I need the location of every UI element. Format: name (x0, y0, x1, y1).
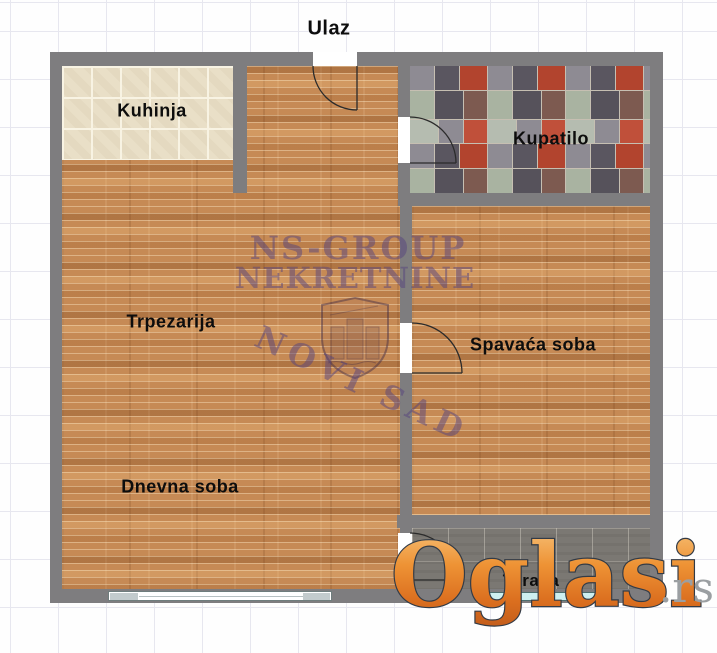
bathroom-label: Kupatilo (513, 129, 589, 150)
bedroom-door-arc (412, 323, 462, 373)
dining-label: Trpezarija (126, 312, 215, 333)
entrance-label: Ulaz (307, 18, 350, 41)
floorplan-canvas: NS-GROUP NEKRETNINE NOVI SAD Ulaz Kuhinj… (0, 0, 717, 653)
oglasi-logo-text: Oglasi (391, 524, 703, 627)
oglasi-logo-tld: .rs (659, 563, 714, 612)
kitchen-label: Kuhinja (117, 101, 187, 122)
bedroom-label: Spavaća soba (470, 335, 596, 356)
watermark-agency-line2: NEKRETNINE (230, 261, 480, 295)
oglasi-logo: Oglasi .rs (383, 524, 717, 642)
living-label: Dnevna soba (121, 477, 239, 498)
entrance-door-arc (313, 66, 357, 110)
bathroom-door-arc (410, 117, 456, 163)
